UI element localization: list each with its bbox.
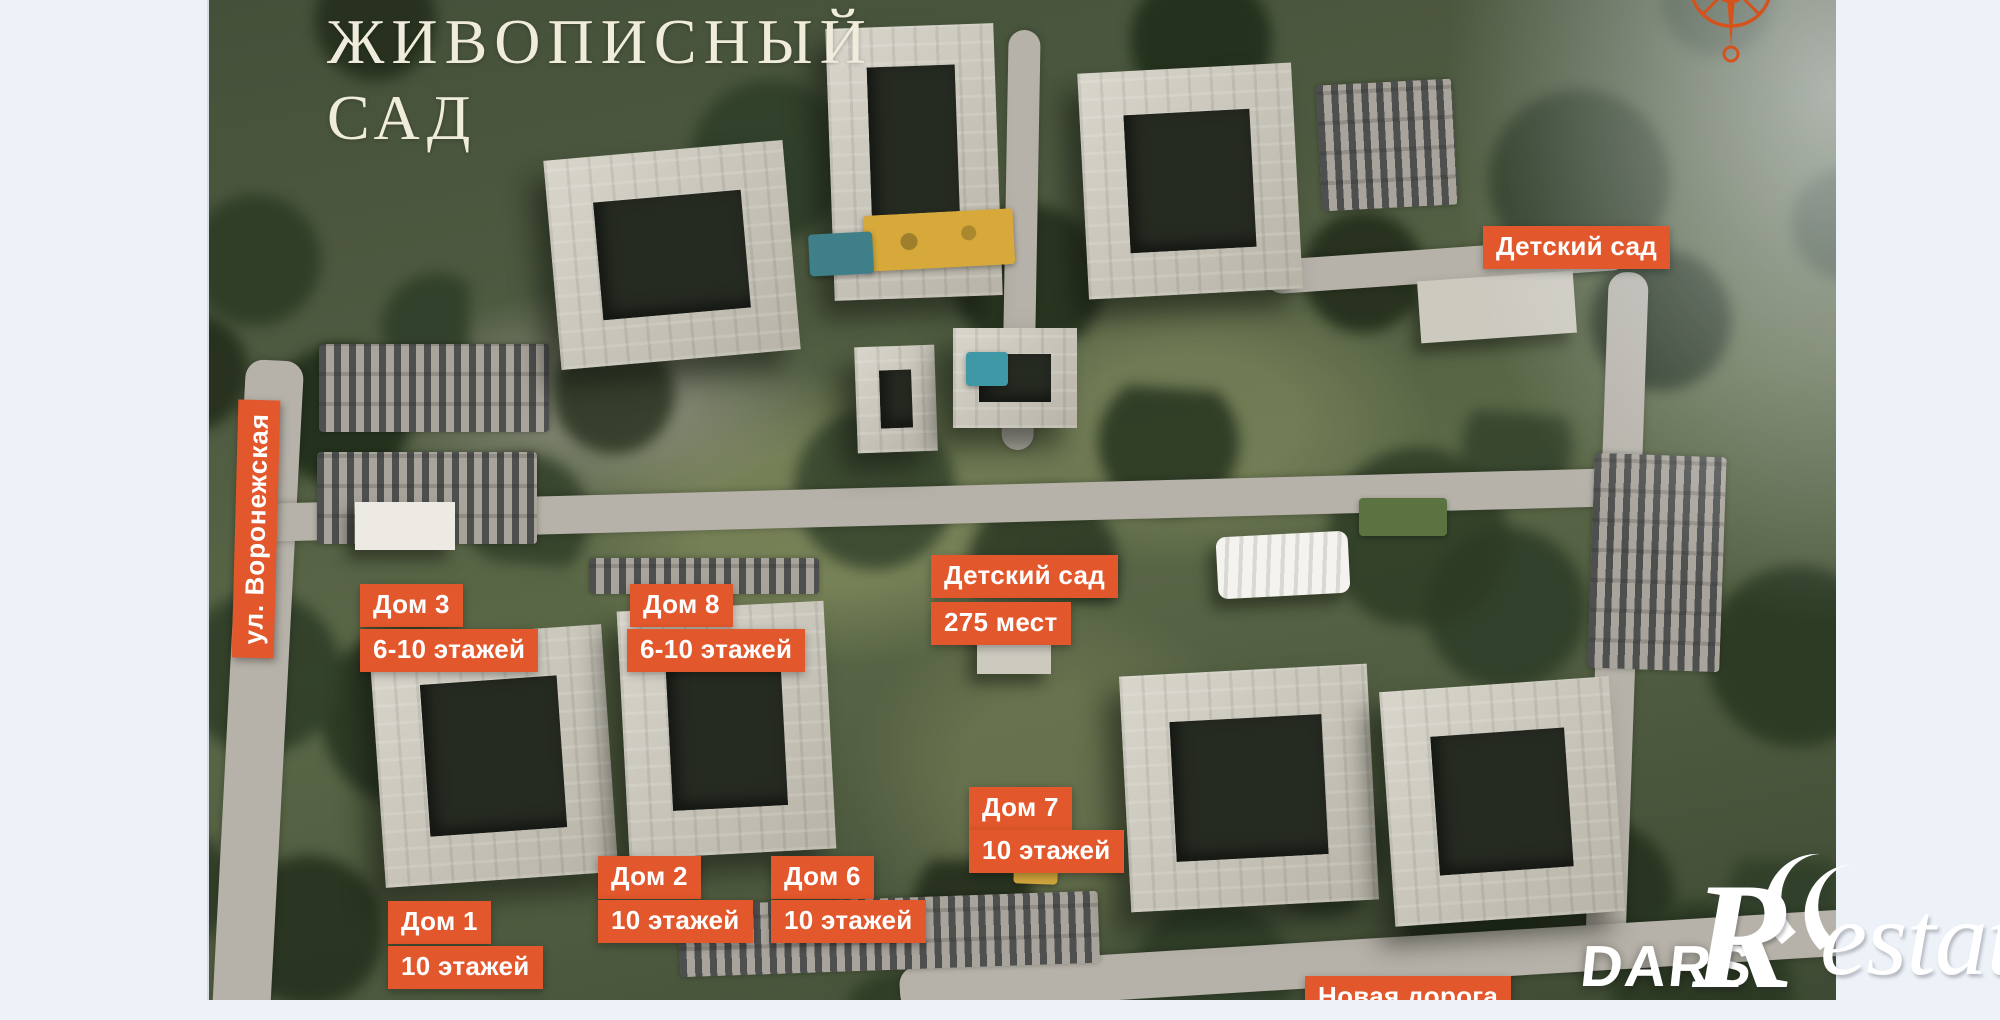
dom7-floors-label: 10 этажей: [969, 830, 1124, 873]
parking-lot: [319, 344, 549, 432]
sports-court: [808, 231, 874, 276]
project-title: ЖИВОПИСНЫЙ САД: [327, 4, 873, 156]
tent-roof-building: [1215, 531, 1350, 600]
courtyard: [1169, 714, 1328, 862]
dom1-name-label: Дом 1: [388, 901, 491, 944]
dom8-floors-label: 6-10 этажей: [627, 629, 805, 672]
kindergarten-capacity-label: 275 мест: [931, 602, 1071, 645]
dom3-name-label: Дом 3: [360, 584, 463, 627]
courtyard: [420, 675, 567, 836]
courtyard: [1430, 727, 1573, 875]
retail-building: [355, 502, 455, 550]
watermark-estate-text: estate: [1820, 886, 2000, 992]
kindergarten-center-label: Детский сад: [931, 555, 1118, 598]
playground: [863, 208, 1016, 272]
dom8-name-label: Дом 8: [630, 584, 733, 627]
building-block: [543, 140, 800, 370]
dom3-floors-label: 6-10 этажей: [360, 629, 538, 672]
courtyard: [879, 369, 913, 428]
street-label-text: ул. Воронежская: [237, 413, 274, 645]
courtyard: [593, 190, 751, 320]
building-block: [1379, 676, 1625, 926]
new-road-label: Новая дорога: [1305, 976, 1511, 1000]
dom2-name-label: Дом 2: [598, 856, 701, 899]
pool: [966, 352, 1008, 386]
kindergarten-ne-label: Детский сад: [1483, 226, 1670, 269]
building-block: [1077, 63, 1303, 300]
dom2-floors-label: 10 этажей: [598, 900, 753, 943]
building-dom7: [1119, 664, 1379, 913]
project-title-line2: САД: [327, 80, 873, 156]
project-title-line1: ЖИВОПИСНЫЙ: [327, 4, 873, 80]
dom6-floors-label: 10 этажей: [771, 900, 926, 943]
building-block: [854, 345, 938, 454]
dom6-name-label: Дом 6: [771, 856, 874, 899]
watermark: R estate: [1692, 852, 2000, 1012]
masterplan-aerial-map: ЖИВОПИСНЫЙ САД ул. Воронежская Детский с…: [207, 0, 1836, 1000]
courtyard: [665, 649, 788, 811]
street-label: ул. Воронежская: [232, 399, 281, 658]
dom1-floors-label: 10 этажей: [388, 946, 543, 989]
dom7-name-label: Дом 7: [969, 787, 1072, 830]
compass-rose-icon: [1681, 0, 1781, 87]
fog-overlay: [1389, 0, 1836, 700]
courtyard: [1123, 109, 1256, 253]
watermark-r-mark: R: [1692, 860, 1793, 1012]
